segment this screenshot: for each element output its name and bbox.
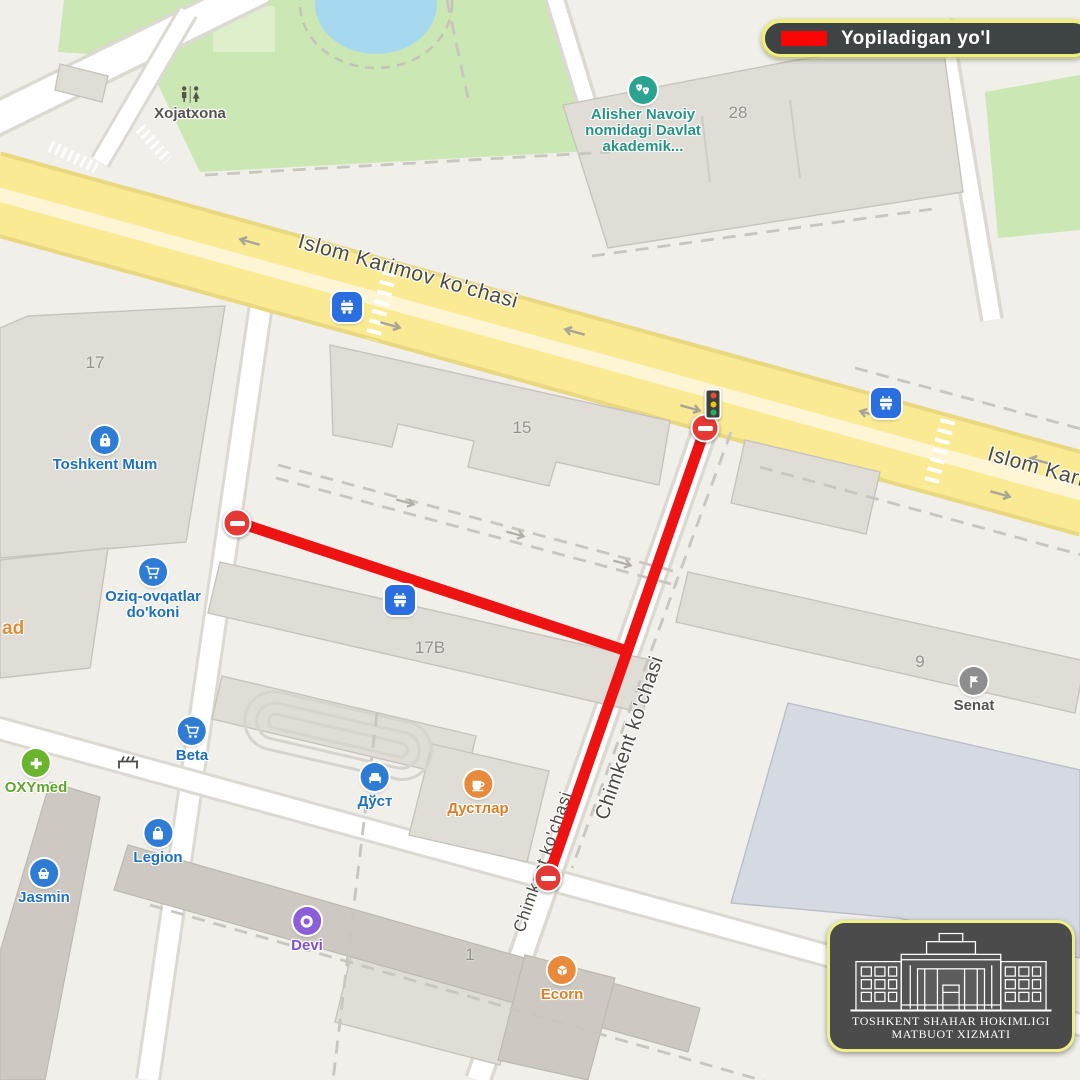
no-entry-icon (534, 864, 563, 893)
poi-alisher-navoiy-theatre[interactable]: Alisher Navoiy nomidagi Davlat akademik.… (585, 76, 701, 155)
basket-icon (30, 859, 58, 887)
medical-cross-icon (22, 749, 50, 777)
shopping-bag-icon (144, 819, 172, 847)
poi-label: Ecorn (541, 987, 584, 1003)
poi-dustlar[interactable]: Дустлар (447, 770, 508, 817)
legend-closed-road: Yopiladigan yo'l (762, 20, 1080, 57)
shopping-cart-icon (178, 717, 206, 745)
bus-stop-icon[interactable] (385, 585, 415, 615)
bus-stop-icon[interactable] (871, 388, 901, 418)
poi-label-line: do'koni (127, 605, 180, 621)
poi-ecorn[interactable]: Ecorn (541, 956, 584, 1003)
poi-label-line: Oziq-ovqatlar (105, 589, 201, 605)
poi-oxymed[interactable]: OXYmed (5, 749, 68, 796)
hokimiyat-building-icon (845, 929, 1057, 1015)
traffic-light-icon (705, 389, 722, 420)
ring-icon (293, 907, 321, 935)
shopping-cart-icon (139, 558, 167, 586)
barrier-icon (116, 753, 140, 776)
poi-label: Devi (291, 938, 323, 954)
poi-label: Toshkent Mum (53, 457, 158, 473)
poi-legion[interactable]: Legion (133, 819, 182, 866)
sofa-icon (361, 763, 389, 791)
flag-icon (960, 667, 988, 695)
press-service-badge: TOSHKENT SHAHAR HOKIMLIGI MATBUOT XIZMAT… (827, 920, 1075, 1052)
legend-label: Yopiladigan yo'l (841, 28, 991, 50)
map-canvas[interactable]: Islom Karimov ko'chasi Islom Karimov ko'… (0, 0, 1080, 1080)
poi-label-line: Alisher Navoiy (591, 107, 695, 123)
poi-jasmin[interactable]: Jasmin (18, 859, 70, 906)
theater-masks-icon (629, 76, 657, 104)
closure-lines-layer (0, 0, 1080, 1080)
poi-senat[interactable]: Senat (954, 667, 995, 714)
no-entry-icon (223, 509, 252, 538)
poi-label-line: akademik... (603, 139, 684, 155)
poi-beta[interactable]: Beta (176, 717, 209, 764)
poi-label: Jasmin (18, 890, 70, 906)
poi-oziq-ovqatlar[interactable]: Oziq-ovqatlar do'koni (105, 558, 201, 621)
poi-label: Xojatxona (154, 106, 226, 122)
poi-label: OXYmed (5, 780, 68, 796)
closed-road-line-inner (240, 523, 630, 652)
poi-dost[interactable]: Дўст (358, 763, 393, 810)
poi-xojatxona[interactable]: Xojatxona (154, 86, 226, 122)
poi-toshkent-mum[interactable]: Toshkent Mum (53, 426, 158, 473)
poi-label-truncated[interactable]: ad (2, 618, 24, 640)
shopping-bag-icon (91, 426, 119, 454)
badge-title-line2: MATBUOT XIZMATI (891, 1028, 1010, 1041)
bus-stop-icon[interactable] (332, 292, 362, 322)
poi-label: Beta (176, 748, 209, 764)
box-icon (548, 956, 576, 984)
coffee-cup-icon (464, 770, 492, 798)
poi-label: Senat (954, 698, 995, 714)
poi-label: Дўст (358, 794, 393, 810)
toilets-icon (178, 86, 202, 103)
poi-label: Дустлар (447, 801, 508, 817)
closed-road-swatch (781, 31, 827, 46)
poi-devi[interactable]: Devi (291, 907, 323, 954)
poi-label: Legion (133, 850, 182, 866)
poi-label-line: nomidagi Davlat (585, 123, 701, 139)
